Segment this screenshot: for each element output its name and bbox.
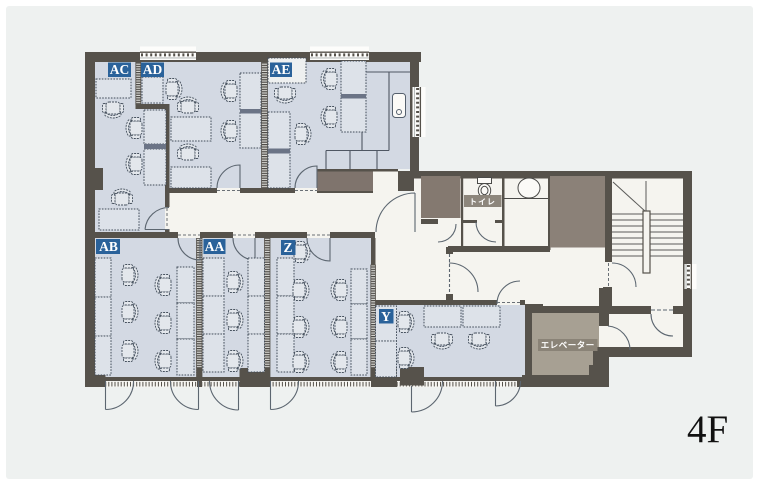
svg-text:AB: AB [99, 239, 118, 254]
svg-text:トイレ: トイレ [469, 197, 496, 206]
svg-text:AE: AE [272, 62, 291, 77]
svg-text:AC: AC [110, 62, 130, 77]
svg-text:Z: Z [283, 240, 292, 255]
svg-text:AD: AD [143, 62, 163, 77]
svg-text:エレベーター: エレベーター [541, 340, 595, 350]
svg-text:Y: Y [381, 309, 391, 324]
svg-text:AA: AA [205, 239, 225, 254]
svg-text:4F: 4F [687, 408, 728, 451]
